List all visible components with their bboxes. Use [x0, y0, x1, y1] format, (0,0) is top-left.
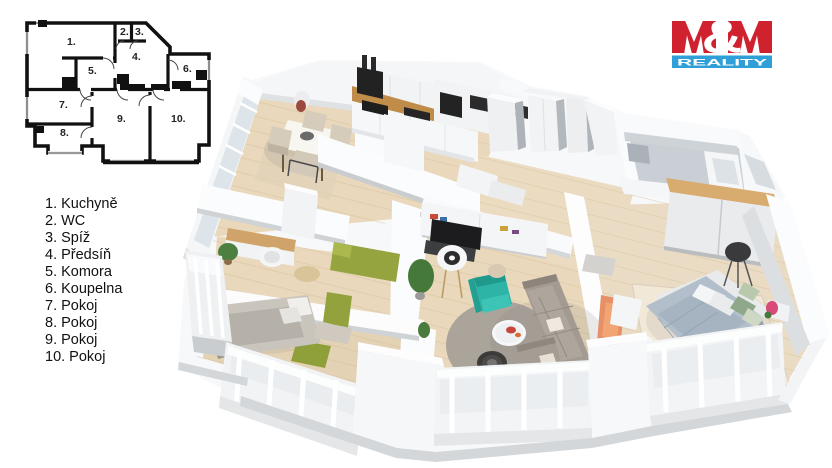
svg-text:2.: 2.: [120, 26, 129, 38]
svg-text:2. WC: 2. WC: [45, 213, 85, 229]
svg-text:REALITY: REALITY: [677, 58, 767, 68]
svg-text:8.: 8.: [60, 127, 69, 139]
svg-text:9.: 9.: [117, 113, 126, 125]
svg-text:5. Komora: 5. Komora: [45, 264, 113, 280]
svg-text:6.: 6.: [183, 63, 192, 75]
svg-text:10. Pokoj: 10. Pokoj: [45, 349, 105, 365]
svg-text:10.: 10.: [171, 113, 186, 125]
svg-text:4.: 4.: [132, 51, 141, 63]
svg-text:6. Koupelna: 6. Koupelna: [45, 281, 123, 297]
svg-text:7.: 7.: [59, 99, 68, 111]
svg-text:&: &: [702, 11, 743, 62]
svg-text:1.: 1.: [67, 36, 76, 48]
svg-text:1. Kuchyně: 1. Kuchyně: [45, 196, 118, 212]
svg-text:4. Předsíň: 4. Předsíň: [45, 247, 111, 263]
svg-text:8. Pokoj: 8. Pokoj: [45, 315, 97, 331]
svg-text:5.: 5.: [88, 65, 97, 77]
svg-text:3. Spíž: 3. Spíž: [45, 230, 90, 246]
svg-text:7. Pokoj: 7. Pokoj: [45, 298, 97, 314]
svg-text:3.: 3.: [135, 26, 144, 38]
svg-text:9. Pokoj: 9. Pokoj: [45, 332, 97, 348]
